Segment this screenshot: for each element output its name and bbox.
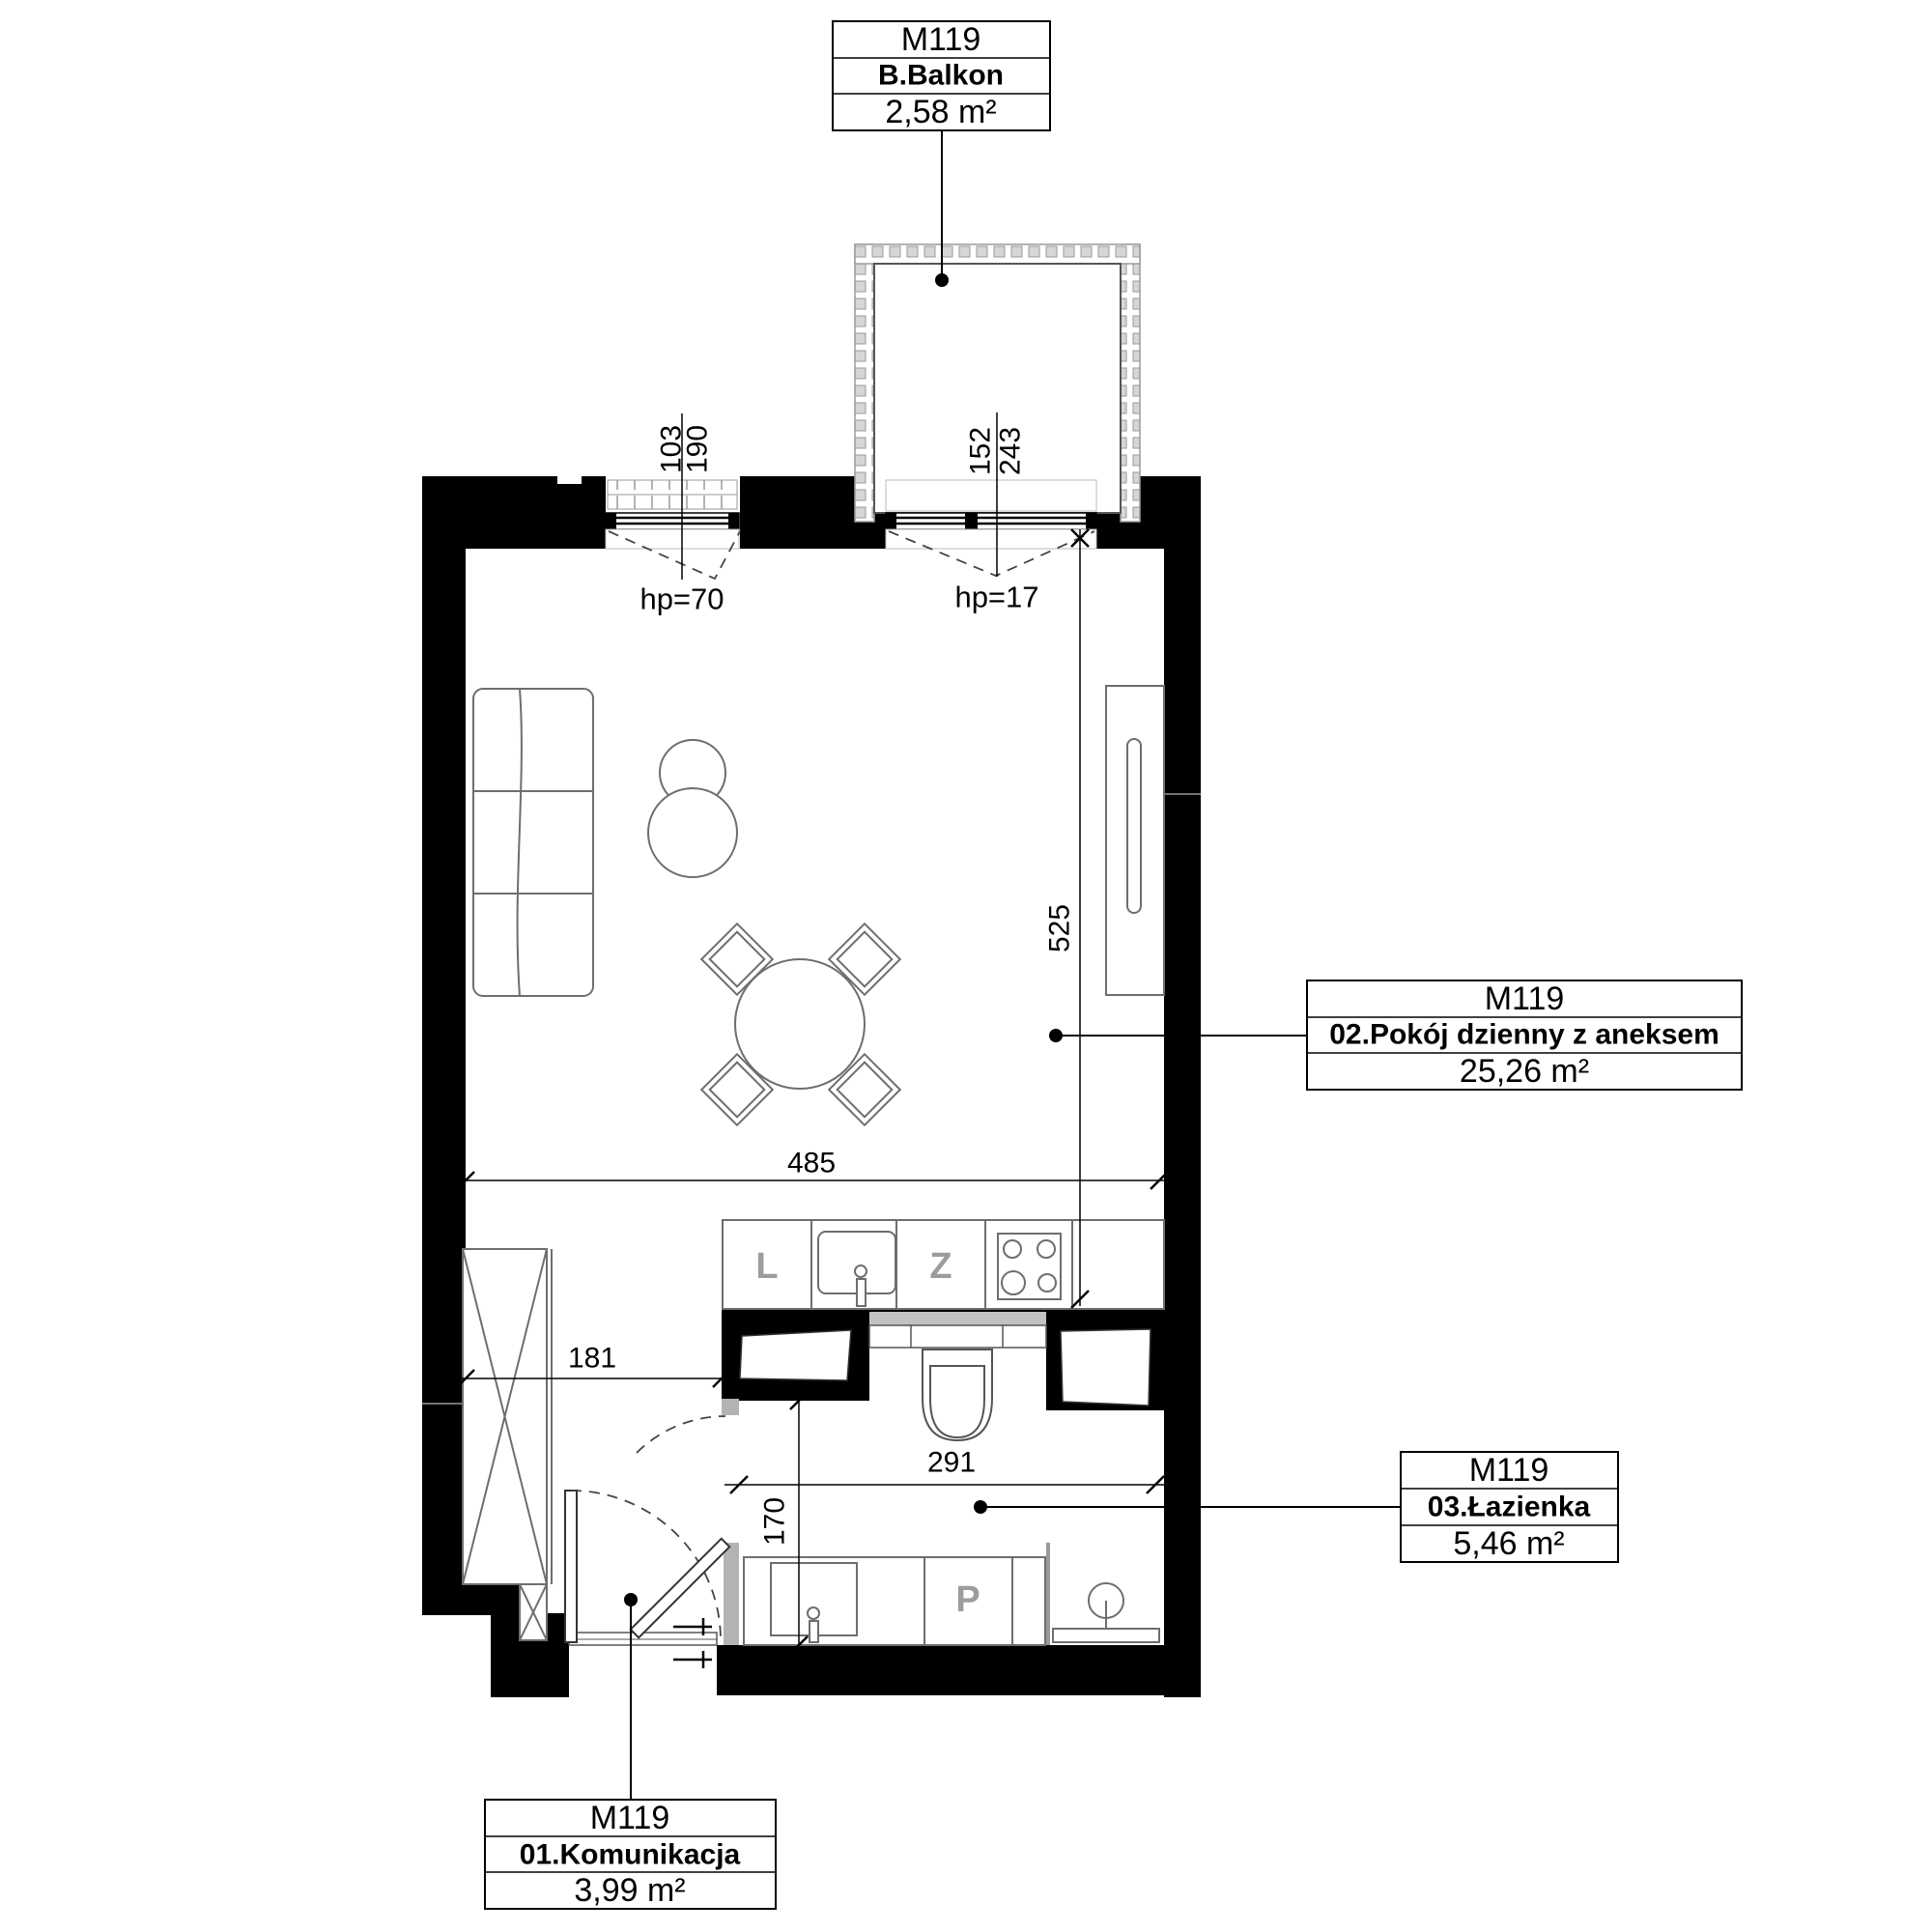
wall-left (422, 476, 466, 1581)
wall-bottom (717, 1645, 1201, 1695)
room-area: 2,58 m² (885, 94, 996, 130)
toilet-seat (930, 1366, 984, 1437)
duct-shaft-left (740, 1330, 851, 1380)
door-jamb-top (722, 1399, 739, 1415)
dim-bath-width: 291 (927, 1447, 976, 1479)
window1-cap (606, 513, 616, 529)
room-area: 5,46 m² (1453, 1525, 1564, 1562)
dim-win2-total: 243 (995, 427, 1027, 475)
window2-inner-sill (886, 529, 1096, 549)
bathroom-door (631, 1416, 730, 1637)
washbasin-counter (1053, 1629, 1159, 1642)
unit-id: M119 (901, 21, 981, 58)
floor-plan: L Z P (0, 0, 1932, 1932)
wardrobe (463, 1249, 552, 1640)
fridge-symbol: L (755, 1246, 778, 1287)
label-living: M119 02.Pokój dzienny z aneksem 25,26 m² (1307, 980, 1742, 1090)
entrance-door-leaf (565, 1491, 577, 1642)
label-hallway: M119 01.Komunikacja 3,99 m² (485, 1800, 776, 1909)
room-name: 03.Łazienka (1428, 1492, 1591, 1523)
dim-win2-width: 152 (965, 427, 997, 475)
label-balcony: M119 B.Balkon 2,58 m² (833, 21, 1050, 130)
stove (998, 1234, 1061, 1299)
kitchen-counter: L Z (723, 1220, 1164, 1309)
dim-living-depth: 525 (1044, 904, 1076, 952)
label-bathroom: M119 03.Łazienka 5,46 m² (1401, 1452, 1618, 1562)
window1-cap (728, 513, 739, 529)
sofa-body (473, 689, 593, 996)
dim-bath-depth: 170 (759, 1497, 791, 1546)
window1-frame (606, 513, 739, 529)
armchair-large (648, 788, 737, 877)
dim-living-width: 485 (787, 1148, 836, 1179)
bathroom-door-leaf (631, 1539, 730, 1638)
room-name: 02.Pokój dzienny z aneksem (1329, 1019, 1719, 1051)
room-area: 3,99 m² (574, 1872, 685, 1909)
leader-dot-hallway (624, 1593, 638, 1606)
window2-cap (965, 513, 978, 529)
unit-id: M119 (1469, 1452, 1549, 1489)
kitchen-faucet-stem (857, 1279, 866, 1306)
dim-win2-parapet: hp=17 (954, 581, 1038, 614)
room-name: B.Balkon (878, 60, 1004, 92)
dining-table (735, 959, 865, 1089)
room-area: 25,26 m² (1460, 1053, 1589, 1090)
window2-cap (886, 513, 896, 529)
bath-counter (744, 1557, 1045, 1645)
unit-id: M119 (590, 1800, 670, 1836)
leader-dot-balcony (935, 273, 949, 287)
wall-notch (557, 476, 582, 484)
window-2-balcony-door (886, 480, 1096, 576)
leader-dot-bathroom (974, 1500, 987, 1514)
bathroom-door-swing (637, 1416, 725, 1453)
balcony-rail-top (855, 244, 1140, 264)
dim-hall-width: 181 (568, 1343, 616, 1375)
balcony-rail-right (1121, 244, 1140, 522)
washer-symbol: P (955, 1579, 980, 1620)
leader-dot-living (1049, 1029, 1063, 1042)
balcony-rail-left (855, 244, 874, 522)
bath-faucet-stem (810, 1621, 818, 1642)
tv-screen (1127, 739, 1141, 913)
cistern-band (869, 1312, 1046, 1325)
duct-shaft-right (1061, 1329, 1151, 1406)
door-jamb-bottom (724, 1543, 739, 1645)
armchairs (648, 740, 737, 877)
dishwasher-symbol: Z (929, 1246, 952, 1287)
tv-unit (1106, 686, 1164, 995)
dim-win1-parapet: hp=70 (639, 582, 724, 616)
dining-set (701, 923, 900, 1125)
window2-frame (886, 513, 1096, 529)
wall-right (1164, 549, 1201, 1697)
window2-threshold (886, 480, 1096, 511)
unit-id: M119 (1485, 980, 1565, 1017)
dim-win1-total: 190 (682, 425, 714, 473)
room-name: 01.Komunikacja (520, 1839, 741, 1871)
cistern-shelf (869, 1325, 1046, 1348)
window2-cap (1086, 513, 1096, 529)
window-1 (606, 480, 740, 579)
sofa (473, 689, 593, 996)
